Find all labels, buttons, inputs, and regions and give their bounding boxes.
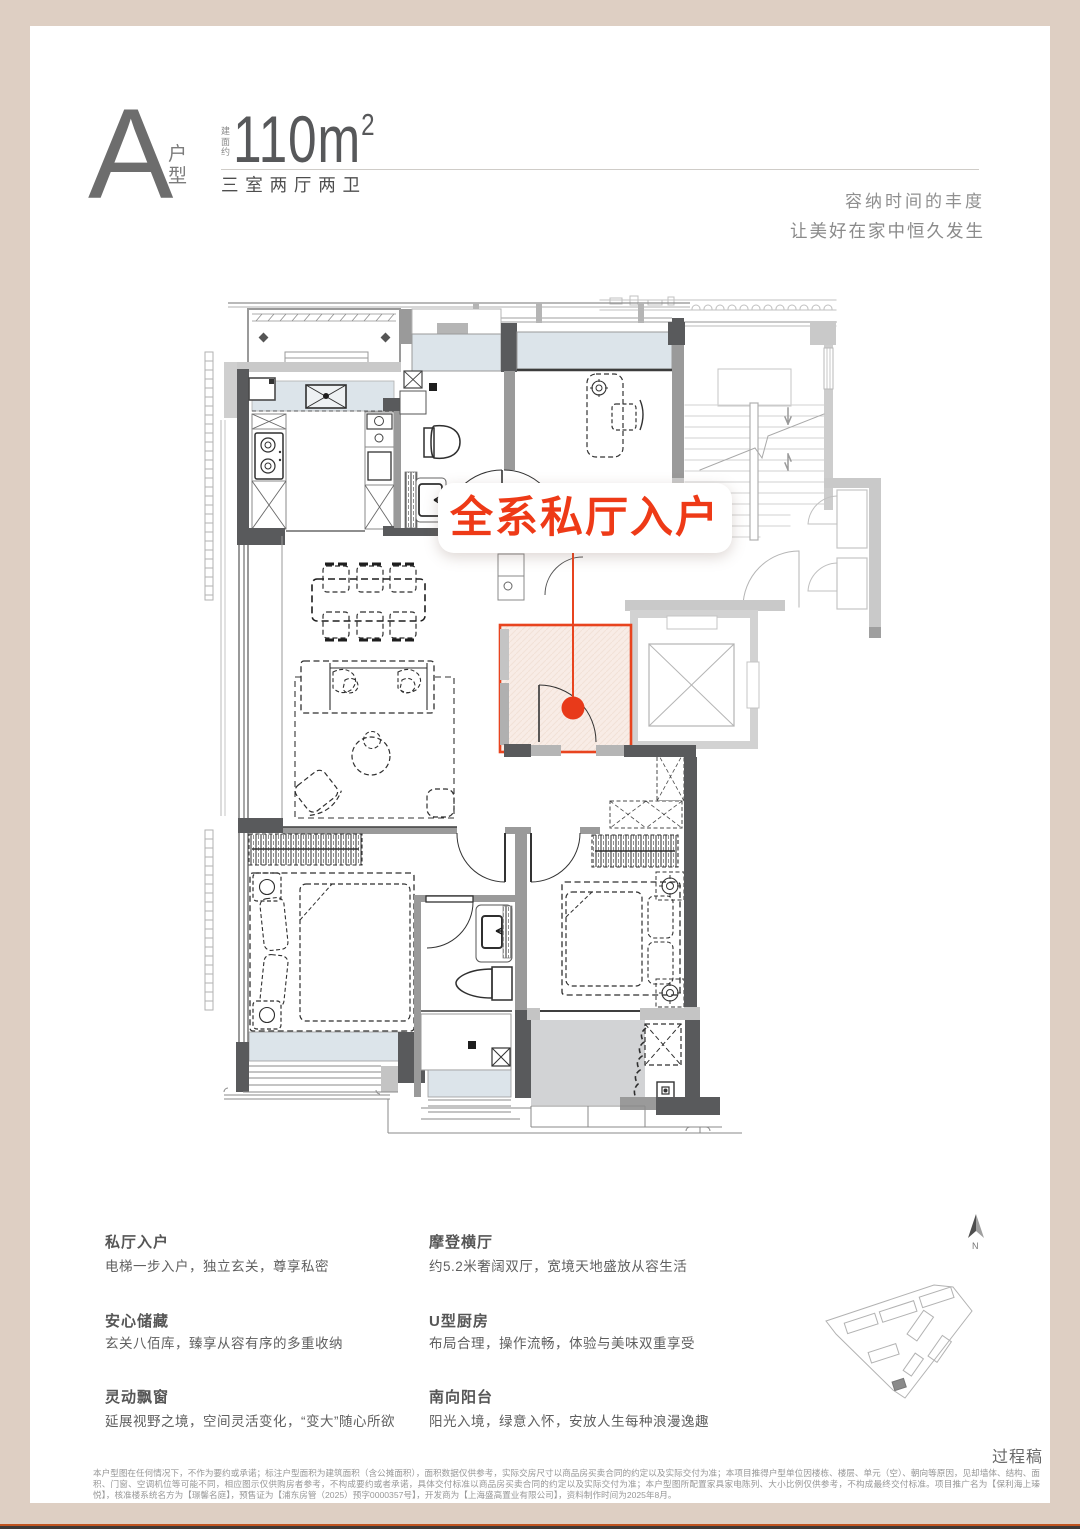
svg-text:N: N (972, 1241, 979, 1251)
